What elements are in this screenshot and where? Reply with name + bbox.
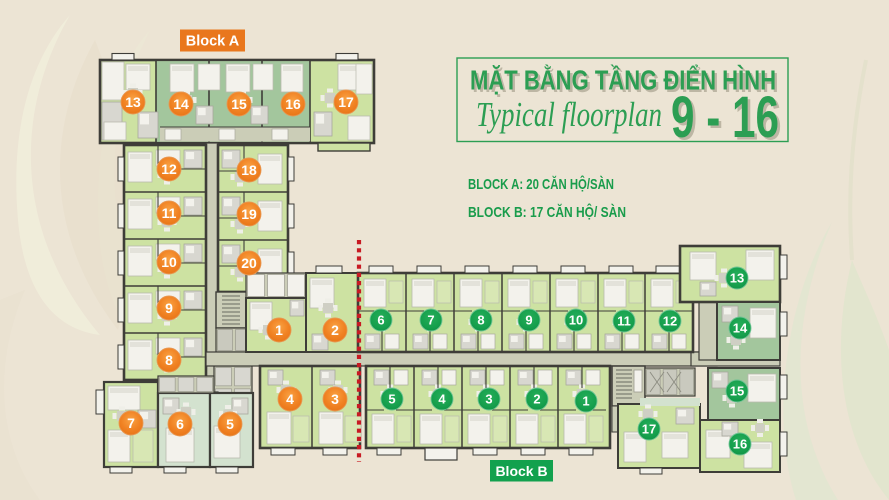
svg-text:13: 13 xyxy=(125,94,141,110)
svg-text:6: 6 xyxy=(176,416,184,432)
svg-text:15: 15 xyxy=(730,384,744,399)
svg-text:5: 5 xyxy=(388,392,395,407)
svg-text:11: 11 xyxy=(617,314,631,329)
svg-text:2: 2 xyxy=(331,322,339,338)
svg-text:5: 5 xyxy=(226,416,234,432)
svg-text:4: 4 xyxy=(438,392,446,407)
svg-text:2: 2 xyxy=(533,392,540,407)
svg-text:10: 10 xyxy=(569,313,583,328)
svg-text:3: 3 xyxy=(331,391,339,407)
svg-text:9: 9 xyxy=(525,313,532,328)
svg-text:17: 17 xyxy=(338,94,354,110)
svg-text:17: 17 xyxy=(642,422,656,437)
svg-text:14: 14 xyxy=(733,321,748,336)
svg-text:1: 1 xyxy=(582,394,589,409)
svg-text:11: 11 xyxy=(162,205,177,221)
svg-text:15: 15 xyxy=(231,96,247,112)
svg-text:12: 12 xyxy=(161,161,177,177)
svg-text:9 - 16: 9 - 16 xyxy=(671,85,779,150)
svg-text:16: 16 xyxy=(733,437,747,452)
svg-text:6: 6 xyxy=(377,313,384,328)
svg-text:18: 18 xyxy=(241,162,257,178)
svg-text:7: 7 xyxy=(127,415,135,431)
svg-text:19: 19 xyxy=(241,206,257,222)
svg-text:12: 12 xyxy=(663,314,677,329)
svg-text:10: 10 xyxy=(161,254,177,270)
svg-text:8: 8 xyxy=(477,313,484,328)
svg-text:Block A: Block A xyxy=(186,34,240,50)
svg-text:3: 3 xyxy=(485,392,492,407)
svg-text:Block B: Block B xyxy=(495,463,547,479)
svg-text:14: 14 xyxy=(173,96,189,112)
svg-text:Typical floorplan: Typical floorplan xyxy=(476,95,662,134)
svg-text:16: 16 xyxy=(285,96,301,112)
svg-text:7: 7 xyxy=(427,313,434,328)
svg-text:8: 8 xyxy=(165,352,173,368)
svg-text:BLOCK B: 17 CĂN HỘ/ SÀN: BLOCK B: 17 CĂN HỘ/ SÀN xyxy=(468,203,626,221)
svg-text:9: 9 xyxy=(165,300,173,316)
svg-text:BLOCK A: 20 CĂN HỘ/SÀN: BLOCK A: 20 CĂN HỘ/SÀN xyxy=(468,175,614,193)
svg-text:4: 4 xyxy=(286,391,294,407)
svg-text:1: 1 xyxy=(275,322,283,338)
svg-text:13: 13 xyxy=(730,271,744,286)
svg-text:20: 20 xyxy=(241,255,257,271)
